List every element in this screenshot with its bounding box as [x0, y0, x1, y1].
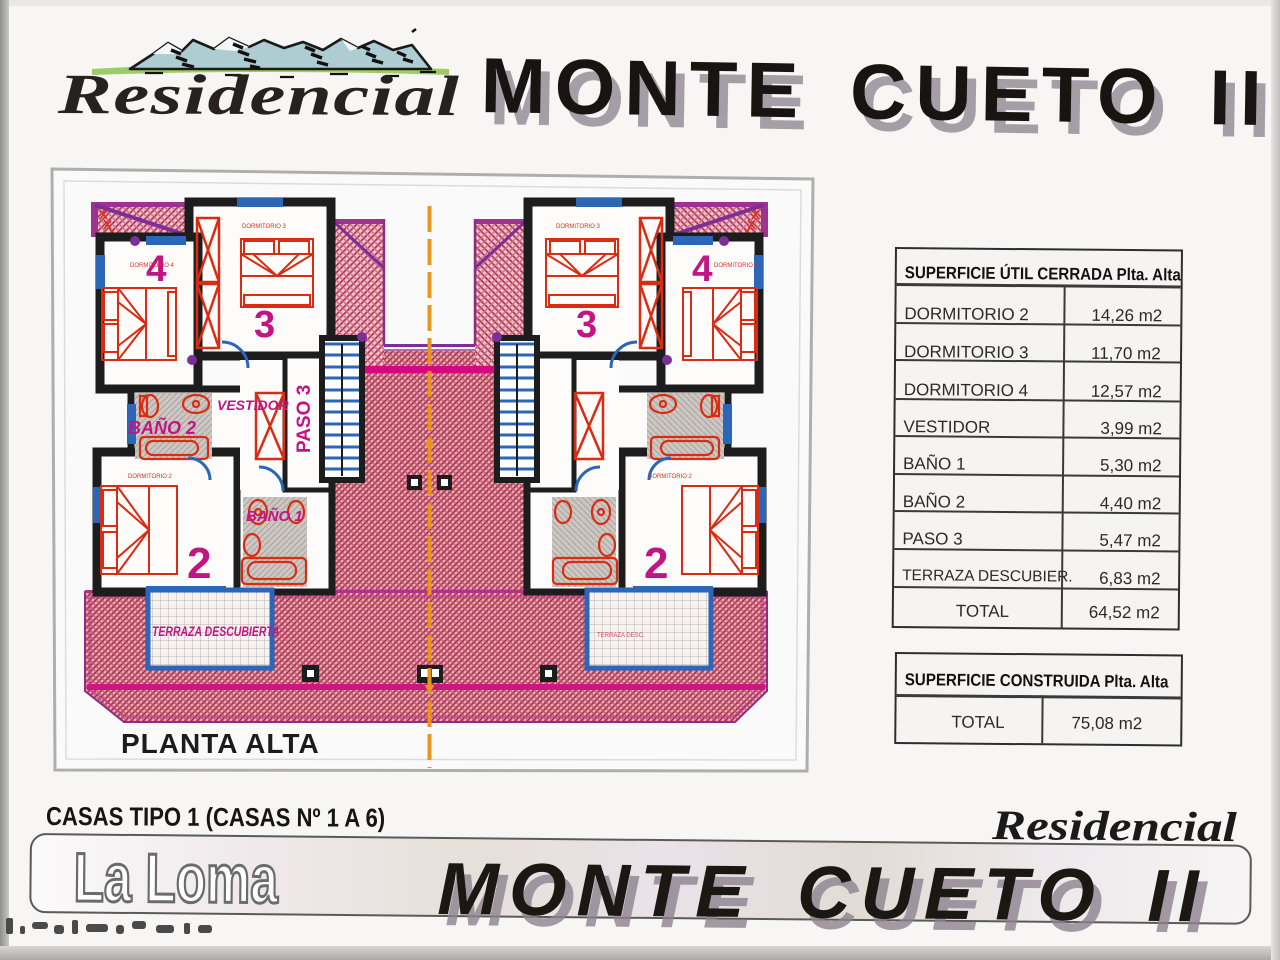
svg-text:4: 4: [692, 248, 713, 289]
svg-text:DORMITORIO 2: DORMITORIO 2: [648, 474, 693, 480]
svg-text:DORMITORIO 3: DORMITORIO 3: [556, 224, 601, 230]
svg-text:DORMITORIO 2: DORMITORIO 2: [128, 474, 173, 480]
svg-text:BAÑO 2: BAÑO 2: [128, 417, 196, 438]
svg-text:3: 3: [576, 304, 597, 346]
svg-text:PLANTA ALTA: PLANTA ALTA: [121, 728, 320, 759]
svg-text:BAÑO 1: BAÑO 1: [246, 507, 303, 525]
svg-text:2: 2: [644, 539, 668, 588]
svg-text:3: 3: [254, 304, 275, 346]
svg-text:VESTIDOR: VESTIDOR: [217, 397, 289, 413]
svg-text:DORMITORIO 4: DORMITORIO 4: [130, 263, 175, 269]
svg-text:2: 2: [187, 539, 211, 588]
svg-text:TERRAZA DESC.: TERRAZA DESC.: [597, 633, 645, 639]
svg-text:TERRAZA DESCUBIERTA: TERRAZA DESCUBIERTA: [152, 624, 279, 640]
svg-text:DORMITORIO 4: DORMITORIO 4: [714, 263, 759, 269]
svg-text:DORMITORIO 3: DORMITORIO 3: [242, 224, 287, 230]
svg-text:PASO 3: PASO 3: [294, 385, 315, 453]
